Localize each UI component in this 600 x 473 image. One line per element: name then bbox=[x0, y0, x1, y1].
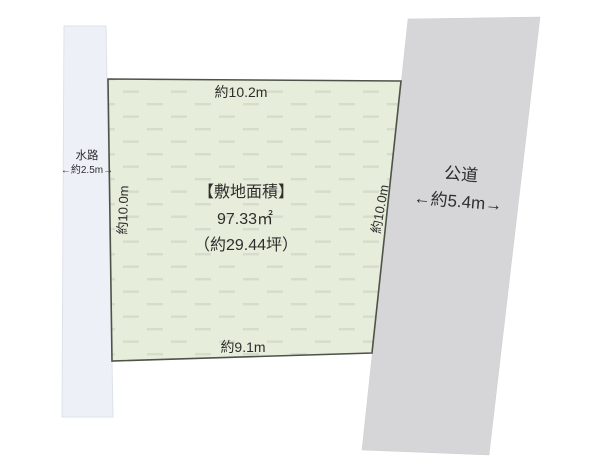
plot-area-sqm: 97.33㎡ bbox=[217, 210, 273, 228]
plot-width-bottom-label: 約9.1m bbox=[220, 339, 265, 355]
plot-depth-left-label: 約10.0m bbox=[115, 185, 132, 235]
diagram-svg: 水路 ←約2.5m→ 約10.2m 約10.0m 約10.0m 約9.1m 【敷… bbox=[0, 0, 600, 473]
waterway-area bbox=[62, 26, 113, 417]
plot-area-tsubo: （約29.44坪） bbox=[194, 236, 298, 254]
plot-width-top-label: 約10.2m bbox=[215, 84, 268, 100]
waterway-label: 水路 bbox=[76, 148, 99, 162]
plot-area-title: 【敷地面積】 bbox=[198, 182, 294, 201]
road-label: 公道 bbox=[443, 164, 479, 186]
waterway-width-label: ←約2.5m→ bbox=[61, 163, 113, 176]
land-plot-diagram: 水路 ←約2.5m→ 約10.2m 約10.0m 約10.0m 約9.1m 【敷… bbox=[0, 0, 600, 473]
